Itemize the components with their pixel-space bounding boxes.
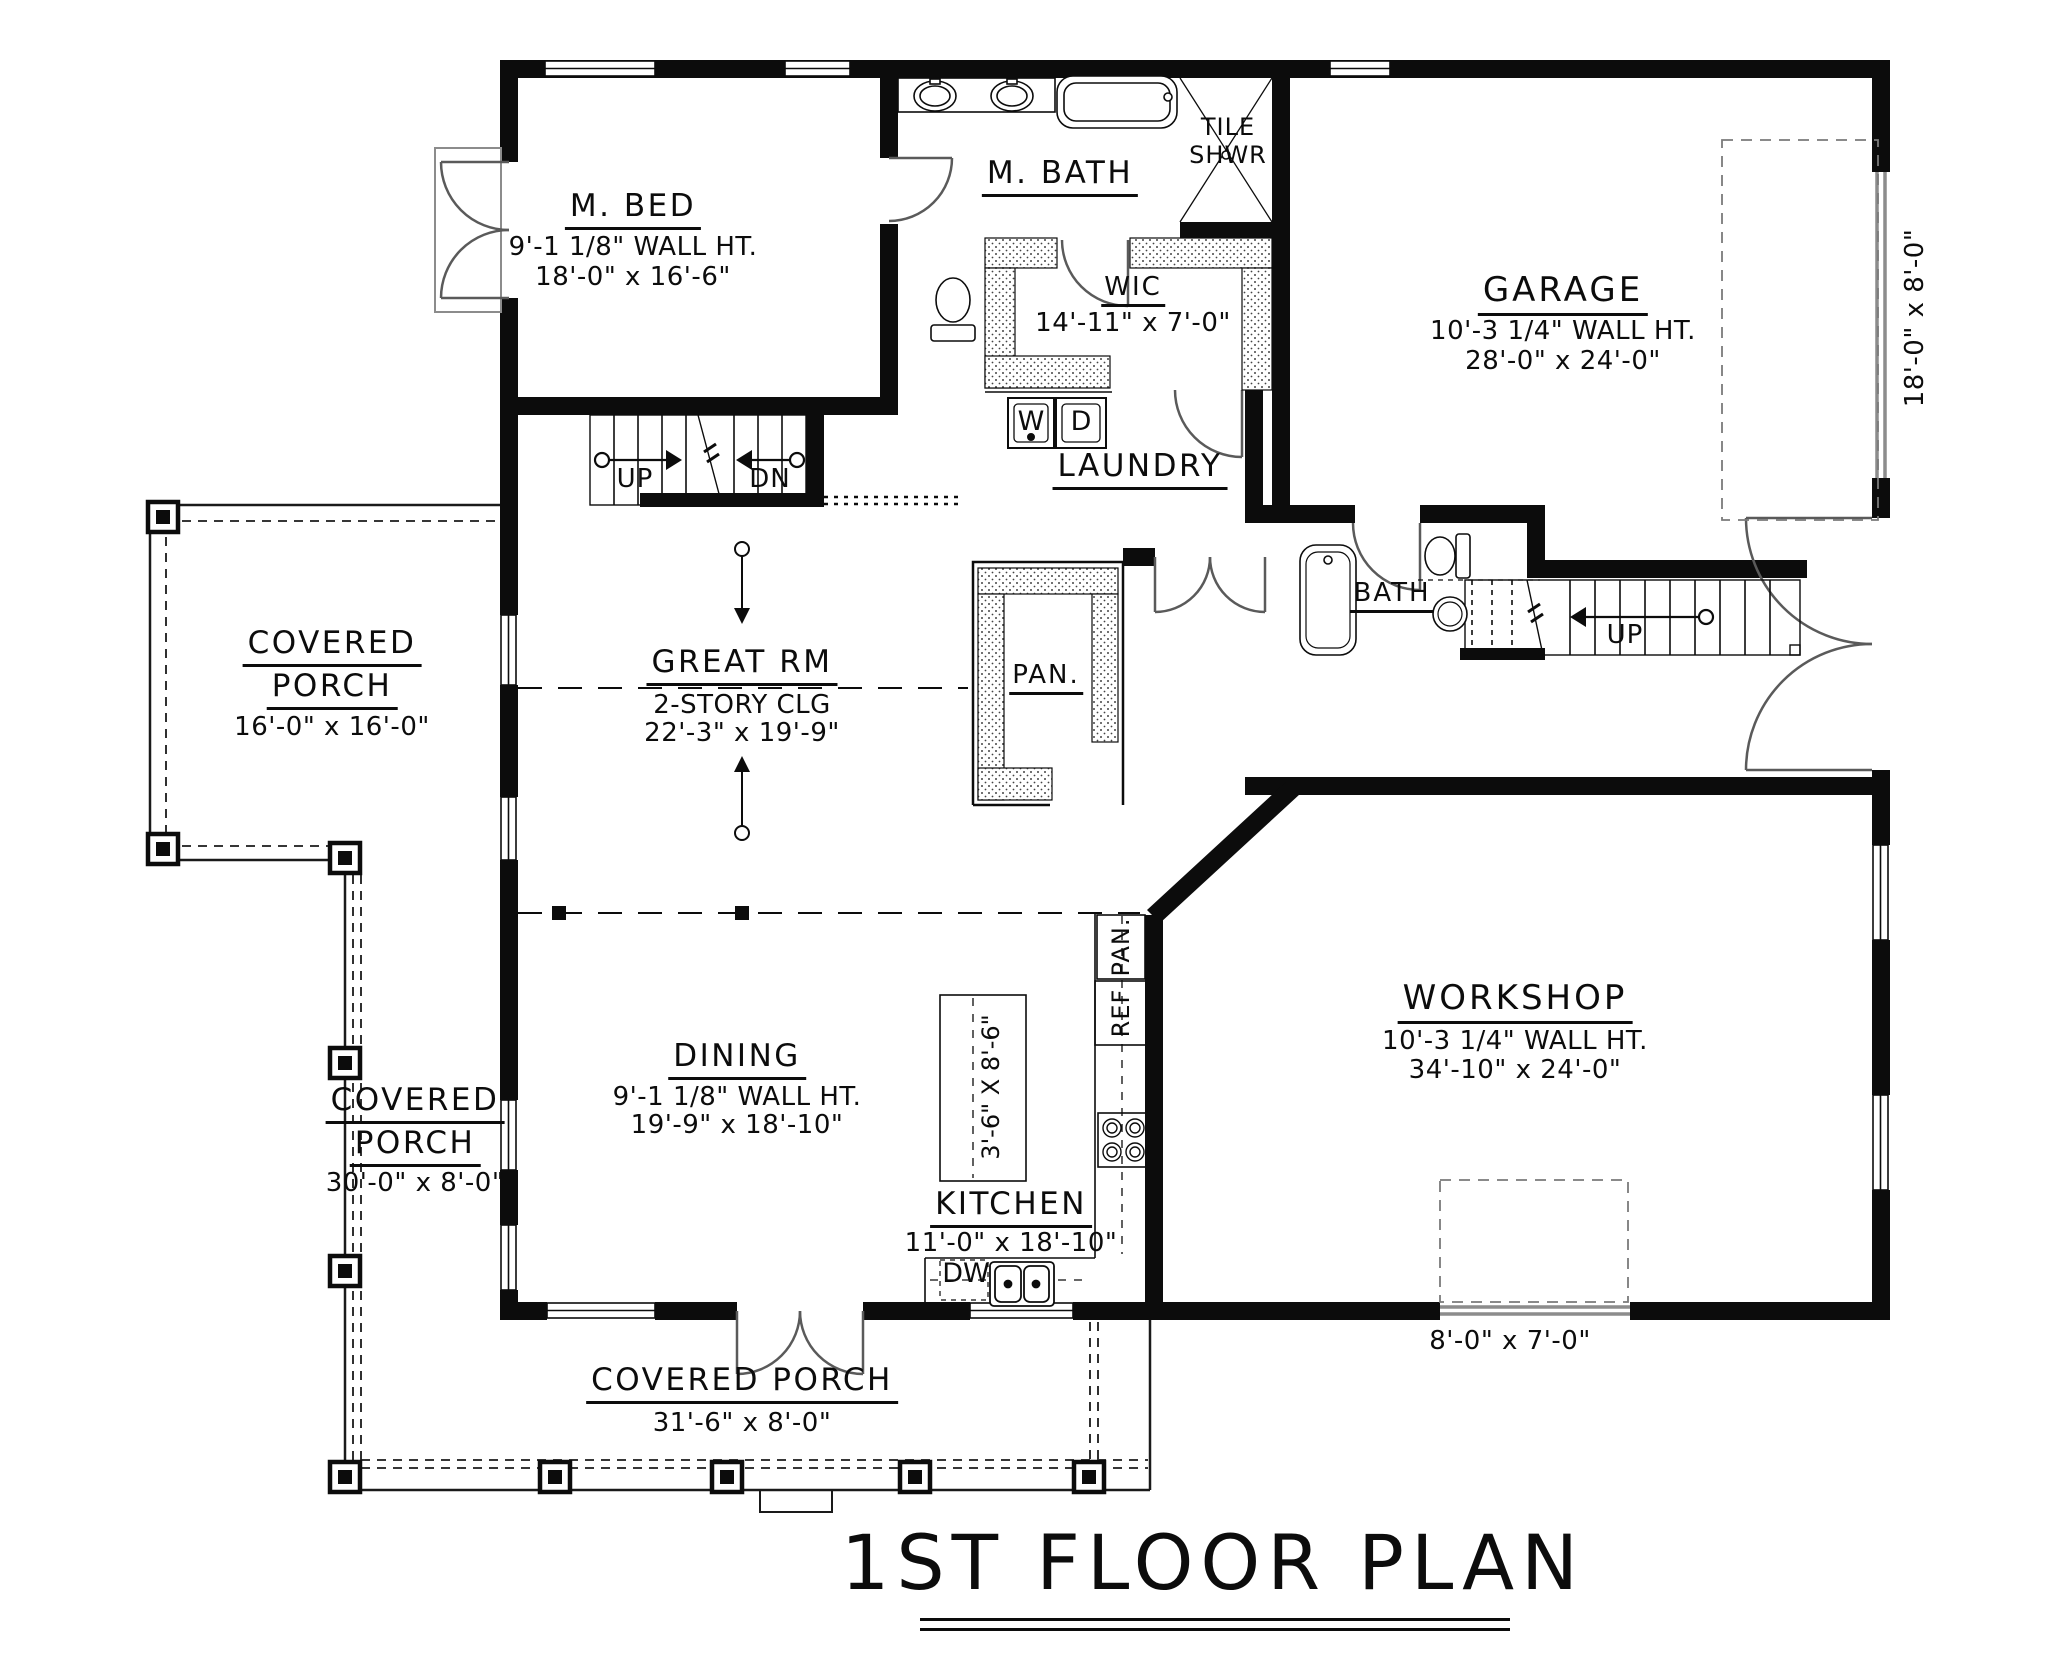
island-dimensions: 3'-6" X 8'-6" <box>977 1014 1005 1159</box>
great-rm-dimensions: 22'-3" x 19'-9" <box>644 718 840 748</box>
m-bed-wall-height: 9'-1 1/8" WALL HT. <box>509 232 758 262</box>
garage-dimensions: 28'-0" x 24'-0" <box>1465 346 1661 376</box>
room-label-garage: GARAGE <box>1478 270 1648 316</box>
porch-side-label-line2: PORCH <box>350 1125 481 1167</box>
stairs-dn-label: DN <box>749 464 790 494</box>
porch-left-label-line1: COVERED <box>243 625 422 667</box>
kitchen-dimensions: 11'-0" x 18'-10" <box>905 1228 1118 1258</box>
porch-bottom-label: COVERED PORCH <box>586 1362 898 1404</box>
sheet-title-underline <box>920 1618 1510 1631</box>
m-bed-dimensions: 18'-0" x 16'-6" <box>535 262 731 292</box>
wic-dimensions: 14'-11" x 7'-0" <box>1035 308 1231 338</box>
great-rm-ceiling: 2-STORY CLG <box>653 690 831 720</box>
garage-wall-height: 10'-3 1/4" WALL HT. <box>1430 316 1696 346</box>
refrigerator-label: REF <box>1107 989 1135 1038</box>
porch-left-label-line2: PORCH <box>267 668 398 710</box>
floorplan-drawing <box>0 0 2048 1674</box>
room-label-m-bath: M. BATH <box>982 155 1138 197</box>
room-label-bath: BATH <box>1350 578 1433 613</box>
sheet-title: 1ST FLOOR PLAN <box>841 1518 1585 1607</box>
dining-wall-height: 9'-1 1/8" WALL HT. <box>613 1082 862 1112</box>
room-label-kitchen: KITCHEN <box>930 1186 1092 1228</box>
porch-side-label-line1: COVERED <box>326 1082 505 1124</box>
dishwasher-label: DW <box>942 1258 990 1289</box>
room-label-pantry: PAN. <box>1009 660 1083 695</box>
floor-plan-page: M. BED 9'-1 1/8" WALL HT. 18'-0" x 16'-6… <box>0 0 2048 1674</box>
workshop-door-dimensions: 8'-0" x 7'-0" <box>1429 1326 1591 1356</box>
room-label-m-bed: M. BED <box>565 188 701 230</box>
tile-shower-label-line2: SHWR <box>1189 141 1267 169</box>
room-label-laundry: LAUNDRY <box>1053 448 1228 490</box>
room-label-wic: WIC <box>1101 272 1165 307</box>
porch-side-dimensions: 30'-0" x 8'-0" <box>326 1168 505 1198</box>
right-stairs-up-label: UP <box>1607 620 1644 650</box>
stairs-up-label: UP <box>617 464 654 494</box>
room-label-workshop: WORKSHOP <box>1398 978 1633 1024</box>
kitchen-pantry-label: PAN. <box>1107 918 1135 977</box>
laundry-appliances <box>985 392 1112 448</box>
garage-door-dimensions: 18'-0" x 8'-0" <box>1900 229 1930 408</box>
washer-label: W <box>1018 406 1045 437</box>
workshop-wall-height: 10'-3 1/4" WALL HT. <box>1382 1026 1648 1056</box>
room-label-dining: DINING <box>668 1038 806 1080</box>
dining-dimensions: 19'-9" x 18'-10" <box>631 1110 844 1140</box>
porch-left-dimensions: 16'-0" x 16'-0" <box>234 712 430 742</box>
porch-bottom-dimensions: 31'-6" x 8'-0" <box>653 1408 832 1438</box>
workshop-dimensions: 34'-10" x 24'-0" <box>1409 1055 1622 1085</box>
dryer-label: D <box>1071 406 1092 437</box>
tile-shower-label-line1: TILE <box>1201 113 1255 141</box>
room-label-great-rm: GREAT RM <box>646 644 837 686</box>
